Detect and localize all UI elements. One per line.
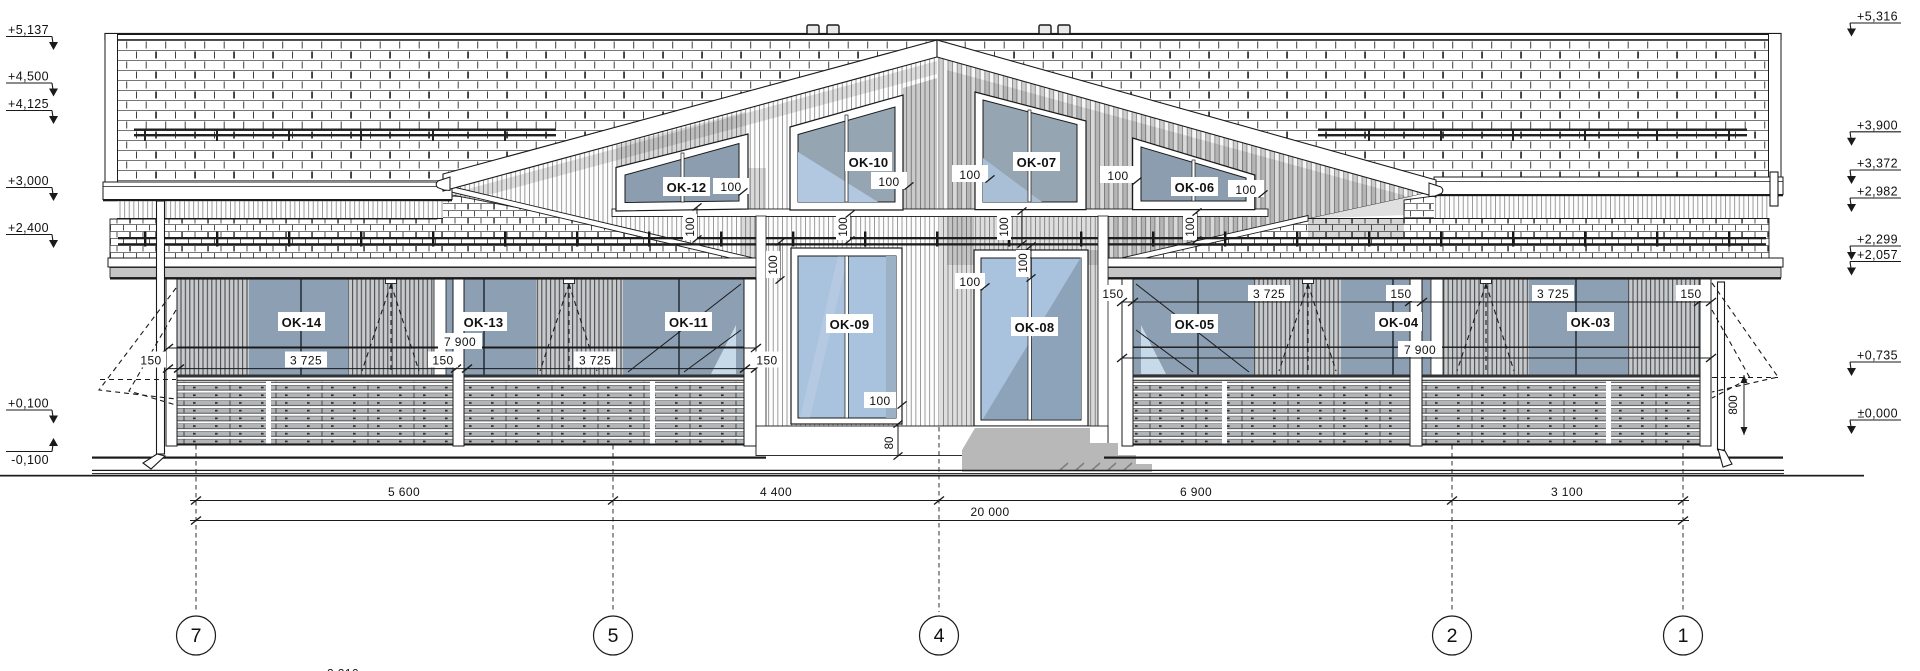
svg-text:4 400: 4 400	[760, 485, 792, 499]
svg-text:OK-10: OK-10	[849, 155, 889, 170]
svg-text:+2,057: +2,057	[1857, 248, 1898, 262]
svg-text:1: 1	[1678, 625, 1689, 647]
svg-text:100: 100	[685, 217, 697, 236]
svg-text:3 725: 3 725	[1537, 287, 1569, 301]
svg-text:+5,137: +5,137	[8, 23, 49, 37]
svg-text:OK-11: OK-11	[669, 315, 708, 330]
svg-text:100: 100	[878, 175, 899, 189]
svg-text:800: 800	[1728, 395, 1740, 414]
svg-text:150: 150	[756, 354, 777, 368]
svg-text:OK-12: OK-12	[667, 180, 707, 195]
svg-text:OK-07: OK-07	[1017, 155, 1057, 170]
svg-text:3 725: 3 725	[579, 354, 611, 368]
svg-text:+2,299: +2,299	[1857, 233, 1898, 247]
svg-text:5 600: 5 600	[388, 485, 420, 499]
svg-text:100: 100	[1107, 169, 1128, 183]
svg-text:100: 100	[1018, 253, 1030, 272]
svg-text:OK-14: OK-14	[282, 315, 322, 330]
svg-text:6 900: 6 900	[1180, 485, 1212, 499]
svg-text:150: 150	[1390, 287, 1411, 301]
svg-text:4: 4	[934, 625, 945, 647]
svg-text:100: 100	[959, 275, 980, 289]
svg-text:OK-09: OK-09	[830, 317, 870, 332]
svg-text:±0,000: ±0,000	[1857, 407, 1898, 421]
svg-text:150: 150	[1102, 287, 1123, 301]
svg-text:100: 100	[869, 394, 890, 408]
svg-text:20 000: 20 000	[970, 505, 1009, 519]
svg-text:OK-03: OK-03	[1571, 315, 1611, 330]
svg-text:5: 5	[608, 625, 619, 647]
svg-text:OK-04: OK-04	[1379, 315, 1419, 330]
svg-text:100: 100	[1185, 217, 1197, 236]
svg-text:2 210: 2 210	[327, 667, 359, 671]
svg-text:150: 150	[140, 354, 161, 368]
svg-text:100: 100	[768, 255, 780, 274]
svg-text:+4,500: +4,500	[8, 70, 49, 84]
svg-text:-0,100: -0,100	[11, 453, 49, 467]
svg-text:3 100: 3 100	[1551, 485, 1583, 499]
svg-text:+0,735: +0,735	[1857, 349, 1898, 363]
svg-text:3 725: 3 725	[290, 354, 322, 368]
svg-text:OK-06: OK-06	[1175, 180, 1215, 195]
svg-text:OK-05: OK-05	[1175, 317, 1215, 332]
svg-text:100: 100	[999, 217, 1011, 236]
svg-text:+3,000: +3,000	[8, 174, 49, 188]
svg-text:OK-08: OK-08	[1015, 320, 1055, 335]
svg-text:+2,982: +2,982	[1857, 185, 1898, 199]
svg-text:7 900: 7 900	[444, 335, 476, 349]
svg-text:7: 7	[191, 625, 202, 647]
svg-text:100: 100	[720, 180, 741, 194]
svg-text:+3,900: +3,900	[1857, 118, 1898, 132]
svg-text:+0,100: +0,100	[8, 397, 49, 411]
svg-text:150: 150	[1680, 287, 1701, 301]
svg-text:7 900: 7 900	[1404, 343, 1436, 357]
svg-text:100: 100	[959, 168, 980, 182]
svg-text:80: 80	[884, 437, 896, 450]
svg-text:+3,372: +3,372	[1857, 157, 1898, 171]
svg-text:OK-13: OK-13	[464, 315, 504, 330]
svg-text:150: 150	[432, 354, 453, 368]
svg-text:+2,400: +2,400	[8, 221, 49, 235]
svg-text:2: 2	[1447, 625, 1458, 647]
svg-text:100: 100	[838, 217, 850, 236]
svg-text:3 725: 3 725	[1253, 287, 1285, 301]
svg-text:100: 100	[1235, 183, 1256, 197]
svg-text:+4,125: +4,125	[8, 97, 49, 111]
svg-text:+5,316: +5,316	[1857, 10, 1898, 24]
